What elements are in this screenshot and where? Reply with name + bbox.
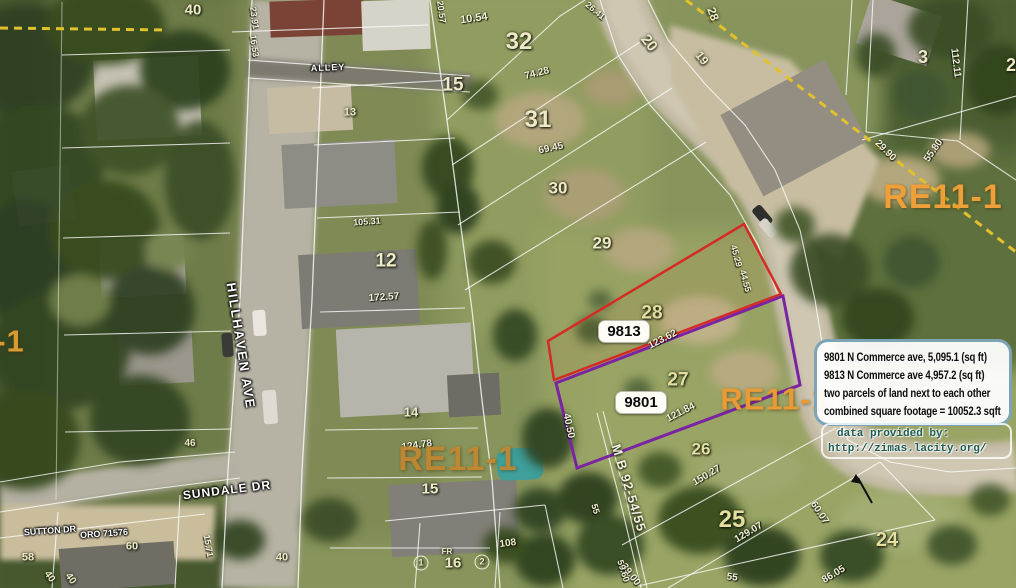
parcel-info-box: 9801 N Commerce ave, 5,095.1 (sq ft) 981… (814, 339, 1012, 426)
lot-number: 26 (692, 441, 711, 458)
info-line-description: two parcels of land next to each other (824, 384, 972, 402)
data-credit-box: data provided by: http://zimas.lacity.or… (821, 423, 1012, 459)
lot-number: 108 (499, 538, 517, 550)
credit-url: http://zimas.lacity.org/ (828, 442, 1010, 457)
info-line-combined: combined square footage = 10052.3 sqft (824, 402, 972, 420)
dimension-label: 105.31 (353, 217, 381, 228)
dimension-label: 16.53 (248, 34, 260, 58)
lot-number: 58 (22, 553, 34, 564)
lot-number: 29 (593, 235, 612, 252)
dimension-label: 86.05 (821, 564, 848, 585)
lot-annotation: FR (442, 548, 453, 556)
lot-number: 30 (549, 180, 568, 197)
lot-number: 60 (126, 542, 138, 553)
lot-number-circled: 2 (475, 555, 490, 570)
lot-number: 20 (638, 32, 660, 54)
info-line-9813: 9813 N Commerce ave 4,957.2 (sq ft) (824, 366, 972, 384)
lot-number: 40 (185, 3, 202, 18)
parcel-callout-9801: 9801 (615, 391, 667, 414)
lot-number: 15 (442, 76, 463, 95)
dimension-label: 40.50 (561, 413, 576, 440)
credit-label: data provided by: (828, 427, 1010, 442)
lot-number: 25 (719, 508, 746, 532)
dimension-label: 112.11 (948, 48, 962, 78)
dimension-label: 45.29 (729, 244, 744, 268)
street-map-reference: ORO 71576 (80, 528, 129, 540)
zoning-label-re11-1: RE11-1 (398, 442, 517, 476)
map-canvas[interactable]: 40 32 31 15 30 29 28 27 26 25 24 12 14 1… (0, 0, 1016, 588)
dimension-label: 172.57 (368, 292, 399, 304)
dimension-label: 20.57 (435, 0, 447, 24)
lot-number: 2 (1006, 56, 1016, 74)
zoning-label-partial: -1 (0, 326, 25, 357)
dimension-label: 150.27 (691, 464, 722, 488)
dimension-label: 69.45 (538, 142, 565, 157)
lot-number: 40 (42, 570, 57, 585)
dimension-label: 60.07 (808, 500, 830, 526)
street-name-hillhaven-ave: HILLHAVEN AVE (225, 282, 258, 411)
lot-number: 46 (184, 439, 195, 449)
map-book-reference: M B 92-54/55 (610, 443, 649, 534)
lot-number: 27 (667, 371, 688, 390)
lot-number-circled: 1 (414, 556, 429, 571)
lot-number: 40 (63, 572, 78, 587)
lot-number: 15 (422, 482, 439, 497)
dimension-label: 10.54 (460, 12, 489, 27)
dimension-label: 55 (726, 572, 738, 583)
dimension-label: 29.90 (873, 139, 898, 164)
dimension-label: 123.62 (647, 329, 679, 352)
dimension-label: 55.80 (923, 138, 946, 164)
dimension-label: 74.28 (524, 66, 551, 82)
lot-number: 3 (918, 48, 928, 66)
parcel-callout-text: 9801 (624, 394, 657, 411)
lot-number: 16 (445, 556, 462, 571)
lot-number: 19 (693, 49, 711, 67)
lot-number: 24 (876, 530, 898, 550)
street-name-sutton-dr: SUTTON DR (24, 525, 77, 538)
dimension-label: 44.55 (738, 269, 753, 293)
lot-number: 12 (375, 252, 396, 271)
map-label-layer: 40 32 31 15 30 29 28 27 26 25 24 12 14 1… (0, 0, 1016, 588)
zoning-label-re11-1: RE11-1 (883, 180, 1002, 214)
dimension-label: 26.41 (583, 0, 606, 21)
lot-number: 14 (404, 406, 418, 419)
dimension-label: 121.84 (665, 402, 697, 425)
dimension-label: 15.71 (202, 534, 215, 558)
lot-number: 13 (344, 108, 356, 119)
street-name-sundale-dr: SUNDALE DR (182, 479, 271, 502)
parcel-callout-text: 9813 (607, 323, 640, 340)
info-line-9801: 9801 N Commerce ave, 5,095.1 (sq ft) (824, 348, 972, 366)
street-name-alley: ALLEY (311, 63, 346, 73)
lot-number: 28 (705, 6, 721, 23)
lot-number: 32 (506, 30, 533, 54)
parcel-callout-9813: 9813 (598, 320, 650, 343)
dimension-label: 23.91 (248, 6, 260, 30)
dimension-label: 55 (589, 503, 601, 515)
lot-number: 40 (276, 553, 288, 564)
lot-number: 31 (525, 108, 552, 132)
